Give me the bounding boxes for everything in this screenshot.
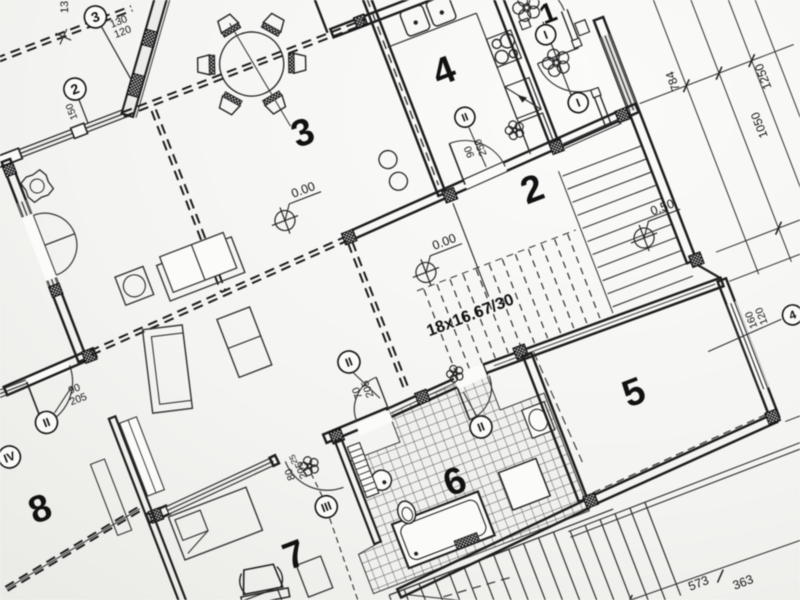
svg-text:131: 131 [59, 0, 71, 13]
